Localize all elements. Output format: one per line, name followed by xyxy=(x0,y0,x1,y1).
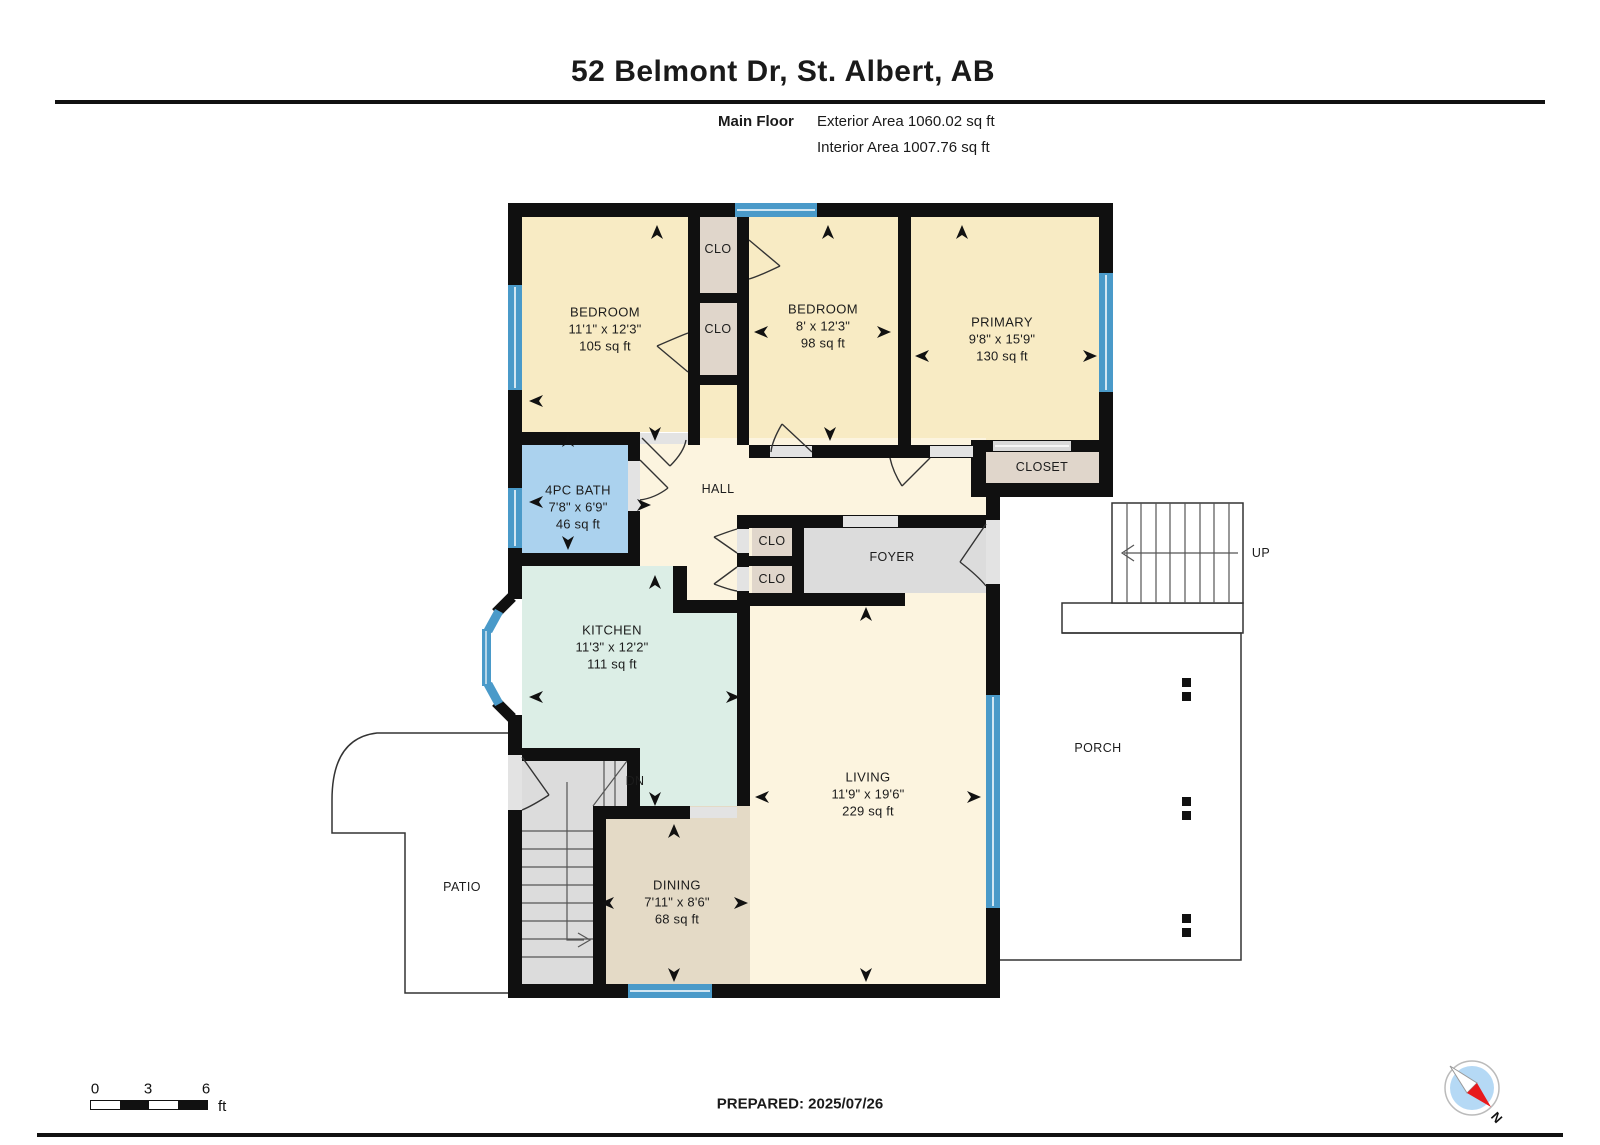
front-door-opening xyxy=(986,520,1000,584)
scale-tick-6: 6 xyxy=(202,1081,210,1098)
patio-outline xyxy=(332,733,516,993)
room-label-living: LIVING 11'9" x 19'6" 229 sq ft xyxy=(832,770,905,821)
room-label-foyer: FOYER xyxy=(869,550,914,564)
room-label-clo-hall-bottom: CLO xyxy=(759,572,786,586)
room-label-primary-closet: CLOSET xyxy=(1016,460,1068,474)
room-label-bedroom2: BEDROOM 8' x 12'3" 98 sq ft xyxy=(788,302,858,353)
room-label-dining: DINING 7'11" x 8'6" 68 sq ft xyxy=(644,878,710,929)
patio-door-opening xyxy=(508,755,522,810)
kitchen-bay-window xyxy=(482,597,522,718)
scale-tick-3: 3 xyxy=(144,1081,152,1098)
porch-outline xyxy=(1000,603,1243,960)
porch-posts xyxy=(1182,678,1191,937)
room-label-patio: PATIO xyxy=(443,880,481,894)
stairs-up-label: UP xyxy=(1252,546,1270,560)
scale-unit-label: ft xyxy=(218,1098,226,1115)
scale-bar xyxy=(90,1100,208,1110)
room-label-hall: HALL xyxy=(702,482,735,496)
floorplan-drawing xyxy=(0,0,1600,1145)
scale-tick-0: 0 xyxy=(91,1081,99,1098)
room-label-clo-top: CLO xyxy=(705,242,732,256)
room-label-kitchen: KITCHEN 11'3" x 12'2" 111 sq ft xyxy=(576,623,649,674)
prepared-date-label: PREPARED: 2025/07/26 xyxy=(717,1096,883,1113)
floorplan-page: 52 Belmont Dr, St. Albert, AB Main Floor… xyxy=(0,0,1600,1145)
footer-divider xyxy=(37,1133,1563,1137)
bedroom-closet-mid-floor xyxy=(700,303,737,375)
stairs-down-label: DN xyxy=(626,774,645,788)
room-label-porch: PORCH xyxy=(1074,741,1121,755)
room-label-clo-hall-top: CLO xyxy=(759,534,786,548)
compass-rose xyxy=(1445,1061,1499,1115)
room-label-bedroom1: BEDROOM 11'1" x 12'3" 105 sq ft xyxy=(569,305,642,356)
room-label-clo-mid: CLO xyxy=(705,322,732,336)
room-label-primary: PRIMARY 9'8" x 15'9" 130 sq ft xyxy=(969,315,1035,366)
room-label-bath: 4PC BATH 7'8" x 6'9" 46 sq ft xyxy=(545,483,611,534)
stairs-up xyxy=(1112,503,1243,603)
